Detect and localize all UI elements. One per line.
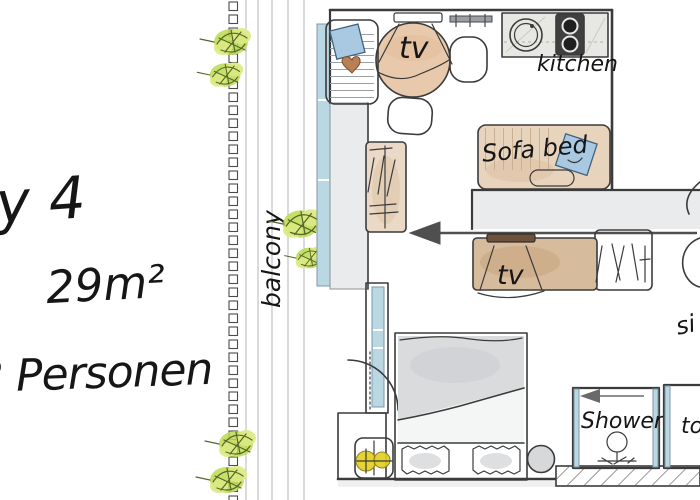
basin-outline <box>683 238 700 287</box>
wall-shelf <box>450 14 492 27</box>
kitchen: kitchen <box>502 13 618 77</box>
bedside-stool <box>528 446 555 473</box>
sideboard: tv <box>473 230 652 298</box>
kitchen-label: kitchen <box>537 52 618 77</box>
lamp-icon <box>374 452 390 468</box>
burner-icon <box>563 37 578 52</box>
faucet-icon <box>530 24 534 28</box>
tv <box>487 234 535 242</box>
sofa-bed: Sofa bed <box>478 125 610 189</box>
shower-room: Shower <box>573 388 665 468</box>
wall-left-slab <box>330 103 368 289</box>
double-bed <box>395 333 527 480</box>
floor-plan-drawing: balcony <box>0 0 700 500</box>
pillow-shade <box>409 453 441 469</box>
chair <box>387 97 433 136</box>
tv-lounge-label: tv <box>497 260 525 291</box>
wall-bottom-shadow <box>338 481 558 487</box>
burner-icon <box>563 19 578 34</box>
sink-label: si <box>673 309 698 340</box>
plant-icon <box>205 430 256 457</box>
shower-label: Shower <box>581 409 665 434</box>
shower-fixture <box>598 432 636 464</box>
floor-plan: ry 4 29m² 2 Personen <box>0 0 700 500</box>
chair <box>450 37 487 82</box>
tv-dining-label: tv <box>399 31 430 66</box>
toilet-label: to <box>681 414 700 439</box>
balcony: balcony <box>196 0 325 500</box>
wardrobe-hatch-marks <box>596 244 650 282</box>
bench <box>326 20 378 104</box>
kitchen-counter <box>502 13 608 57</box>
tv-label-underline <box>478 291 544 298</box>
blanket-watercolor <box>410 347 500 383</box>
toilet-room: to <box>664 385 700 468</box>
pillow <box>330 24 365 59</box>
wardrobe <box>366 142 406 232</box>
pillow-shade <box>480 453 512 469</box>
corridor-wall-band <box>473 191 700 229</box>
wall-tv <box>394 13 442 22</box>
balcony-window <box>317 24 330 286</box>
shower-glass-wall <box>574 389 579 467</box>
plant-icon <box>196 466 247 493</box>
nightstand <box>355 438 393 478</box>
plant-icon <box>200 28 251 55</box>
toilet-glass-wall <box>665 386 670 467</box>
shower-arrow-icon <box>580 389 644 403</box>
